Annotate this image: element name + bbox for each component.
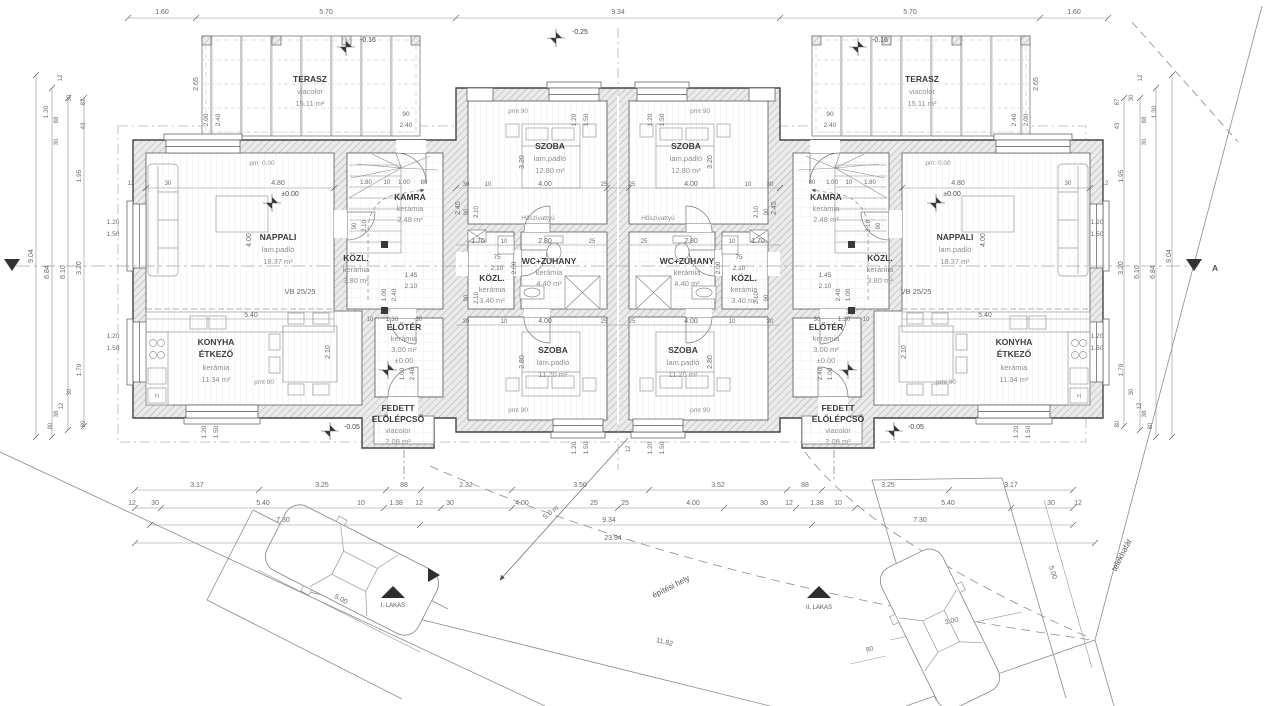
dim-label: 3.20	[76, 261, 83, 275]
dim-label: 4.00	[684, 318, 698, 325]
svg-text:viacolor: viacolor	[825, 426, 851, 435]
dim-label: -0.05	[344, 424, 360, 431]
dim-label: 2.10	[474, 206, 480, 218]
dim-label: 11.82	[655, 637, 673, 648]
dim-label: 3.17	[190, 482, 204, 489]
dim-label: 2.45	[771, 201, 778, 215]
svg-text:3.00 m²: 3.00 m²	[813, 345, 839, 354]
dim-label: 1.20	[571, 441, 578, 454]
dim-label: 2.40	[409, 367, 416, 380]
room-name: WC+ZUHANY	[522, 256, 577, 266]
sill	[127, 201, 133, 271]
unit1-label: I. LAKAS	[381, 603, 405, 609]
dim-label: 1.50	[213, 425, 220, 438]
svg-text:kerámia: kerámia	[867, 265, 895, 274]
dim-label: 2.10	[819, 283, 832, 290]
dim-label: 12	[128, 181, 135, 187]
dim-label: 2.40	[1011, 113, 1018, 126]
dim-label: 1.60	[155, 9, 169, 16]
dim-label: 2.45	[455, 201, 462, 215]
svg-text:kerámia: kerámia	[813, 334, 841, 343]
svg-text:2.08 m²: 2.08 m²	[825, 437, 851, 446]
dim-label: pmt 90	[508, 407, 528, 414]
dim-label: 2.80	[707, 355, 714, 369]
dim-label: 43	[1115, 122, 1121, 129]
dim-label: -0.16	[872, 37, 888, 44]
dim-label: 80	[865, 645, 874, 653]
dim-label: 9.34	[611, 9, 625, 16]
entrance-marker-unit2	[807, 586, 831, 598]
room-name: KAMRA	[394, 192, 426, 202]
dim-label: pmt 90	[936, 379, 956, 386]
dim-label: 10	[485, 182, 492, 188]
dim-label: 30	[165, 181, 172, 187]
dim-label: 1.20	[647, 441, 654, 454]
svg-text:viacolor: viacolor	[909, 87, 935, 96]
room-name: KONYHA	[996, 337, 1033, 347]
section-letter: A	[1212, 263, 1218, 273]
dim-label: 30	[767, 319, 774, 325]
dim-label: 6.84	[1150, 265, 1157, 279]
dim-label: 2.40	[817, 367, 824, 380]
dim-label: 1.30	[838, 316, 851, 323]
dim-label: 1.60	[1067, 9, 1081, 16]
dim-label: pm: 0.00	[249, 160, 275, 167]
svg-text:lam.padló: lam.padló	[262, 245, 295, 254]
svg-text:kerámia: kerámia	[674, 268, 702, 277]
room-name: KÖZL.	[343, 253, 369, 263]
dim-label: 30	[67, 388, 73, 395]
dim-label: 25	[590, 500, 598, 507]
plot-boundary-right	[1095, 6, 1262, 706]
dim-label: 1.50	[1091, 231, 1104, 238]
dim-label: 1.30	[43, 105, 50, 118]
svg-text:12.80 m²: 12.80 m²	[671, 166, 701, 175]
dim-label: 5.70	[903, 9, 917, 16]
dim-label: 12	[59, 402, 65, 409]
dim-label: 30	[416, 317, 423, 323]
door-nappali-stair-left	[334, 210, 347, 238]
room-name: FEDETT	[821, 403, 855, 413]
dim-label: ±0.00	[281, 191, 299, 198]
dim-label: 1.20	[1091, 333, 1104, 340]
floor-plan-page: TERASZ viacolor 15.11 m² TERASZ viacolor…	[0, 0, 1280, 706]
dim-label: 90	[876, 222, 882, 229]
dim-label: 9.04	[1166, 249, 1173, 263]
dim-label: 75	[493, 254, 501, 261]
svg-text:lam.padló: lam.padló	[534, 154, 567, 163]
dim-label: 88	[801, 482, 809, 489]
dim-label: -0.16	[360, 37, 376, 44]
dim-label: 7.30	[276, 517, 290, 524]
svg-text:15.11 m²: 15.11 m²	[295, 99, 325, 108]
dim-label: 5.70	[319, 9, 333, 16]
dim-label: 25	[641, 239, 648, 245]
svg-text:3.80 m²: 3.80 m²	[867, 276, 893, 285]
door-unit-to-core-right	[768, 252, 780, 276]
dim-label: 2.80	[684, 238, 698, 245]
dim-label: 2.40	[391, 288, 398, 301]
dim-label: 2.10	[754, 292, 760, 304]
svg-text:18.37 m²: 18.37 m²	[940, 257, 970, 266]
dim-label: 4.00	[538, 318, 552, 325]
dim-label: 9.34	[602, 517, 616, 524]
dim-label: pmt 90	[690, 108, 710, 115]
dim-label: 43	[81, 122, 87, 129]
dim-label: 1.20	[1013, 425, 1020, 438]
level-symbol	[321, 422, 339, 440]
dim-label: 90	[352, 222, 358, 229]
dim-label: 90	[464, 294, 470, 301]
dim-label: 2.40	[824, 122, 837, 129]
window	[749, 88, 775, 101]
dim-label: 2.10	[901, 345, 908, 359]
dim-label: 10	[846, 180, 853, 186]
dim-label: 3.52	[711, 482, 725, 489]
dim-label: 80	[48, 422, 54, 429]
door-szoba-top-right	[686, 224, 712, 232]
room-szoba-bottom-right	[629, 317, 768, 420]
dim-label: 1.79	[76, 363, 83, 376]
dim-label: 1.00	[398, 180, 410, 186]
svg-text:lam.padló: lam.padló	[670, 154, 703, 163]
svg-text:2.48 m²: 2.48 m²	[813, 215, 839, 224]
room-name: KAMRA	[810, 192, 842, 202]
dim-label: 10	[384, 180, 391, 186]
svg-text:2.48 m²: 2.48 m²	[397, 215, 423, 224]
room-name: TERASZ	[293, 74, 327, 84]
dim-label: 1.30	[386, 316, 399, 323]
svg-text:2.08 m²: 2.08 m²	[385, 437, 411, 446]
dim-label: 10	[834, 500, 842, 507]
dim-label: 38	[1142, 410, 1148, 417]
dim-label: 80	[1148, 422, 1154, 429]
car-right	[870, 541, 1010, 706]
dim-label: pmt 90	[254, 379, 274, 386]
dim-label: 1.50	[583, 441, 590, 454]
shower-left	[565, 276, 600, 309]
dim-label: 2.40	[835, 288, 842, 301]
svg-text:kerámia: kerámia	[813, 204, 841, 213]
dim-label: pmt 90	[508, 108, 528, 115]
dim-label: 2.10	[362, 220, 368, 232]
dim-label: 6.10	[60, 265, 67, 279]
dim-label: 2.10	[491, 265, 504, 272]
svg-text:lam.padló: lam.padló	[537, 358, 570, 367]
dim-label: 2.00	[715, 261, 722, 274]
dim-label: 1.20	[571, 113, 578, 126]
dim-label: 1.00	[827, 367, 834, 380]
dim-label: 2.65	[193, 77, 200, 91]
dim-label: 4.00	[538, 181, 552, 188]
dim-label: -0.25	[572, 29, 588, 36]
floor-plan-svg: TERASZ viacolor 15.11 m² TERASZ viacolor…	[0, 0, 1280, 706]
dim-label: 2.10	[733, 265, 746, 272]
dim-label: 10	[357, 500, 365, 507]
svg-text:3.00 m²: 3.00 m²	[391, 345, 417, 354]
dim-label: 30	[463, 182, 470, 188]
dim-label: 90	[764, 294, 770, 301]
dim-label: 30	[446, 500, 454, 507]
svg-text:ÉTKEZŐ: ÉTKEZŐ	[997, 348, 1032, 359]
level-symbol	[885, 422, 903, 440]
dim-label: 1.45	[405, 272, 418, 279]
dim-label: 3.20	[519, 155, 526, 169]
dim-label: 2.10	[866, 220, 872, 232]
dim-label: 5.40	[941, 500, 955, 507]
dim-label: 1.30	[1151, 105, 1158, 118]
dim-label: 3.25	[315, 482, 329, 489]
dim-label: 12	[1137, 402, 1143, 409]
parcel-boundary-label: telekhatár	[1110, 537, 1134, 573]
section-marker-left	[4, 259, 20, 271]
dim-label: 30	[151, 500, 159, 507]
dim-label: 2.00	[511, 261, 518, 274]
dim-label: 1.50	[107, 231, 120, 238]
dim-label: 1.38	[810, 500, 824, 507]
svg-text:kerámia: kerámia	[203, 363, 231, 372]
svg-text:±0.00: ±0.00	[817, 356, 836, 365]
svg-text:lam.padló: lam.padló	[667, 358, 700, 367]
dim-label: 5.40	[256, 500, 270, 507]
dim-label: 38	[54, 410, 60, 417]
dim-label: 1.80	[360, 180, 372, 186]
svg-text:kerámia: kerámia	[397, 204, 425, 213]
building-zone-dashed-1	[430, 466, 1092, 640]
section-marker-right	[1186, 259, 1202, 271]
svg-text:3.80 m²: 3.80 m²	[343, 276, 369, 285]
dim-label: 4.00	[246, 233, 253, 247]
dim-label: pm: 0.00	[925, 160, 951, 167]
room-name: TERASZ	[905, 74, 939, 84]
dim-label: 90	[764, 208, 770, 215]
dim-label: 2.10	[474, 292, 480, 304]
svg-text:±0.00: ±0.00	[395, 356, 414, 365]
dim-label: 25	[589, 239, 596, 245]
dim-label: 25	[601, 182, 608, 188]
svg-text:15.11 m²: 15.11 m²	[907, 99, 937, 108]
room-name: KÖZL.	[479, 273, 505, 283]
dim-label: 5.40	[244, 312, 258, 319]
shower-right	[636, 276, 671, 309]
dim-label: 1.50	[107, 345, 120, 352]
dim-label: 1.00	[399, 367, 406, 380]
room-name: SZOBA	[538, 345, 568, 355]
dim-label: 1.70	[751, 238, 765, 245]
room-name: NAPPALI	[937, 232, 974, 242]
dim-label: pmt 90	[690, 407, 710, 414]
dim-label: 30	[54, 138, 60, 145]
dim-label: 12	[1102, 181, 1109, 187]
dim-label: 5.0 m	[542, 505, 560, 521]
unit2-label: II. LAKAS	[806, 605, 832, 611]
door-szoba-bottom-left	[524, 309, 550, 317]
heatpump-label: Hőszivattyú	[641, 215, 675, 222]
dim-label: 3.20	[1118, 261, 1125, 275]
appliance-label: H	[155, 394, 159, 400]
door-nappali-stair-right	[889, 210, 902, 238]
dim-label: 25	[629, 319, 636, 325]
dim-label: 88	[54, 116, 60, 123]
dim-label: 87	[1115, 98, 1121, 105]
terrace-right	[812, 36, 1030, 136]
room-nappali-konyha-left	[146, 153, 362, 405]
dim-label: 1.38	[389, 500, 403, 507]
dim-label: 1.95	[76, 169, 83, 182]
dim-label: 25	[621, 500, 629, 507]
dim-label: 1.20	[201, 425, 208, 438]
svg-text:11.34 m²: 11.34 m²	[999, 375, 1029, 384]
dim-label: 9.04	[28, 249, 35, 263]
dim-label: 90	[402, 111, 410, 118]
dim-label: 4.00	[515, 500, 529, 507]
dim-label: 12	[785, 500, 793, 507]
room-name: NAPPALI	[260, 232, 297, 242]
dim-label: 3.20	[707, 155, 714, 169]
dim-label: 12	[1074, 500, 1082, 507]
dim-label: 6.10	[1134, 265, 1141, 279]
dim-label: 80	[421, 180, 428, 186]
terrace-door-left	[396, 140, 426, 153]
room-name: SZOBA	[535, 141, 565, 151]
svg-text:kerámia: kerámia	[1001, 363, 1029, 372]
dim-label: 4.00	[686, 500, 700, 507]
dim-label: 12	[1138, 74, 1144, 81]
door-unit-to-core-left	[456, 252, 468, 276]
dim-label: 1.70	[471, 238, 485, 245]
room-name: KÖZL.	[867, 253, 893, 263]
dim-label: 12	[58, 74, 64, 81]
dim-label: 30	[1142, 138, 1148, 145]
dim-label: 1.20	[647, 113, 654, 126]
dim-label: 10	[729, 319, 736, 325]
dim-label: 90	[464, 208, 470, 215]
dim-label: 12	[415, 500, 423, 507]
beam-label: VB 25/25	[901, 287, 932, 296]
terrace-left	[202, 36, 420, 136]
svg-text:11.34 m²: 11.34 m²	[201, 375, 231, 384]
dim-label: 5.00	[1047, 565, 1058, 580]
level-symbol	[547, 29, 565, 47]
dim-label: 1.50	[583, 113, 590, 126]
dim-label: 10	[367, 317, 374, 323]
dim-label: 30	[760, 500, 768, 507]
dim-label: 80	[81, 420, 87, 427]
dim-label: 2.40	[400, 122, 413, 129]
dim-label: 3.17	[1004, 482, 1018, 489]
dim-label: 2.00	[203, 113, 210, 126]
svg-text:kerámia: kerámia	[391, 334, 419, 343]
dim-label: 10	[729, 239, 736, 245]
dim-label: 1.50	[659, 113, 666, 126]
dim-label: 25	[601, 319, 608, 325]
dim-label: 5.40	[978, 312, 992, 319]
dim-label: 30	[814, 317, 821, 323]
room-name: SZOBA	[671, 141, 701, 151]
dim-label: 2.80	[519, 355, 526, 369]
dim-label: 80	[1115, 420, 1121, 427]
svg-text:kerámia: kerámia	[343, 265, 371, 274]
dim-label: 1.95	[1118, 169, 1125, 182]
dim-label: 30	[767, 182, 774, 188]
dim-label: 10	[745, 182, 752, 188]
door-szoba-top-left	[524, 224, 550, 232]
dim-label: 23.94	[604, 535, 622, 542]
building-zone-label: építési hely	[651, 574, 691, 600]
dim-label: 10	[501, 319, 508, 325]
svg-text:viacolor: viacolor	[297, 87, 323, 96]
terrace-door-right	[810, 140, 840, 153]
parking-right	[807, 478, 1092, 706]
dim-label: 25	[629, 182, 636, 188]
offset-5m-arrow	[500, 438, 628, 580]
dim-label: 1.50	[659, 441, 666, 454]
svg-text:11.20 m²: 11.20 m²	[538, 370, 568, 379]
dim-label: 2.40	[215, 113, 222, 126]
dim-label: 1.20	[107, 333, 120, 340]
dim-label: 88	[400, 482, 408, 489]
dim-label: 12	[626, 445, 632, 452]
dim-label: 30	[1065, 181, 1072, 187]
svg-text:3.40 m²: 3.40 m²	[479, 296, 505, 305]
dim-label: 1.20	[1091, 219, 1104, 226]
dim-label: 2.32	[459, 482, 473, 489]
dim-label: 30	[1047, 500, 1055, 507]
dim-label: 30	[1129, 388, 1135, 395]
dim-label: -0.05	[908, 424, 924, 431]
dim-label: 90	[826, 111, 834, 118]
dim-label: 75	[735, 254, 743, 261]
dim-label: 1.50	[1025, 425, 1032, 438]
dim-label: 1.50	[1091, 345, 1104, 352]
dim-label: 1.00	[826, 180, 838, 186]
room-nappali-konyha-right	[874, 153, 1090, 405]
room-name: SZOBA	[668, 345, 698, 355]
dim-label: 1.79	[1118, 363, 1125, 376]
dim-label: 1.00	[381, 288, 388, 301]
svg-text:kerámia: kerámia	[479, 285, 507, 294]
dim-label: 1.00	[845, 288, 852, 301]
dim-label: 2.10	[754, 206, 760, 218]
svg-text:ELŐLÉPCSŐ: ELŐLÉPCSŐ	[812, 413, 865, 424]
svg-text:ÉTKEZŐ: ÉTKEZŐ	[199, 348, 234, 359]
dim-label: 10	[501, 239, 508, 245]
svg-text:ELŐLÉPCSŐ: ELŐLÉPCSŐ	[372, 413, 425, 424]
beam-label: VB 25/25	[285, 287, 316, 296]
dim-label: 10	[863, 317, 870, 323]
dim-label: 30	[67, 94, 73, 101]
dim-label: 1.45	[819, 272, 832, 279]
dim-label: 3.50	[573, 482, 587, 489]
svg-text:11.20 m²: 11.20 m²	[668, 370, 698, 379]
dim-label: 2.65	[1033, 77, 1040, 91]
room-name: FEDETT	[381, 403, 415, 413]
dim-label: 2.10	[405, 283, 418, 290]
dim-label: 4.80	[271, 180, 285, 187]
dim-label: 12	[128, 500, 136, 507]
room-name: KONYHA	[198, 337, 235, 347]
room-szoba-bottom-left	[468, 317, 607, 420]
appliance-label: H	[1077, 394, 1081, 400]
svg-text:kerámia: kerámia	[536, 268, 564, 277]
dim-label: ±0.00	[943, 191, 961, 198]
heatpump-label: Hőszivattyú	[521, 215, 555, 222]
dim-label: 2.10	[325, 345, 332, 359]
dim-label: 7.30	[913, 517, 927, 524]
dim-label: 6.84	[44, 265, 51, 279]
dim-label: 4.00	[684, 181, 698, 188]
dim-label: 2.80	[538, 238, 552, 245]
